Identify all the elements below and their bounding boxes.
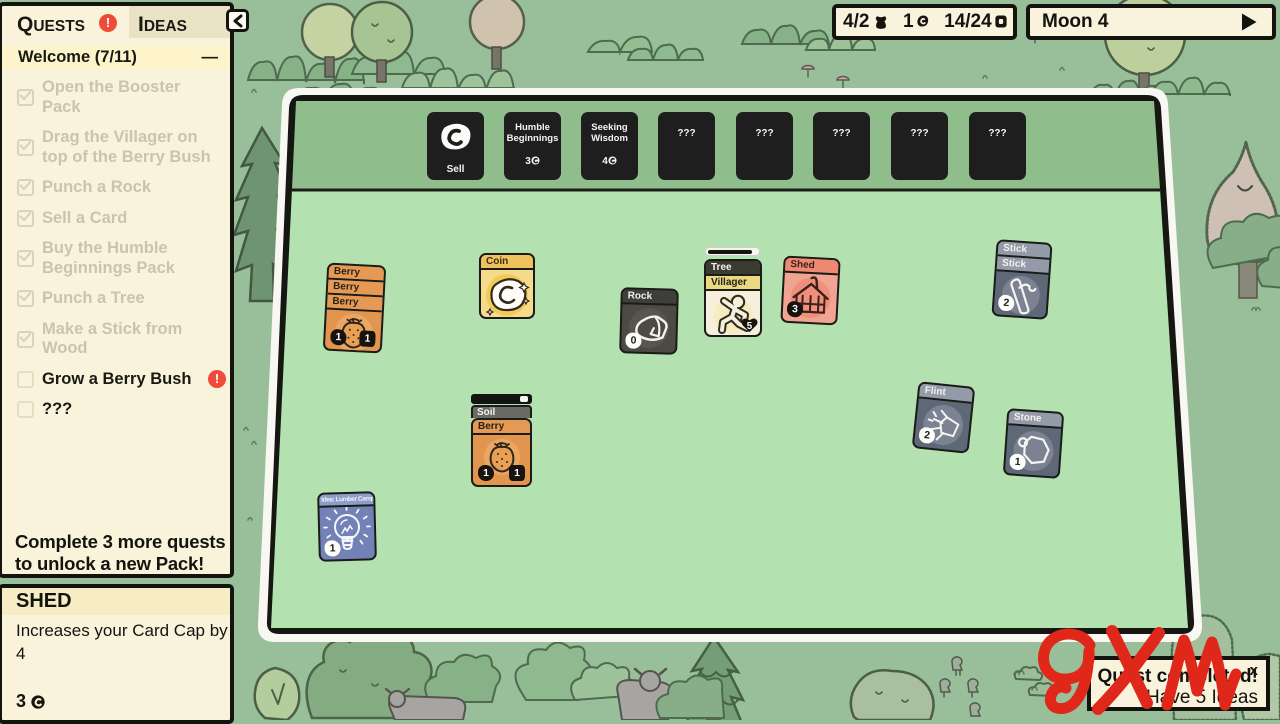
svg-text:5: 5: [747, 321, 753, 332]
